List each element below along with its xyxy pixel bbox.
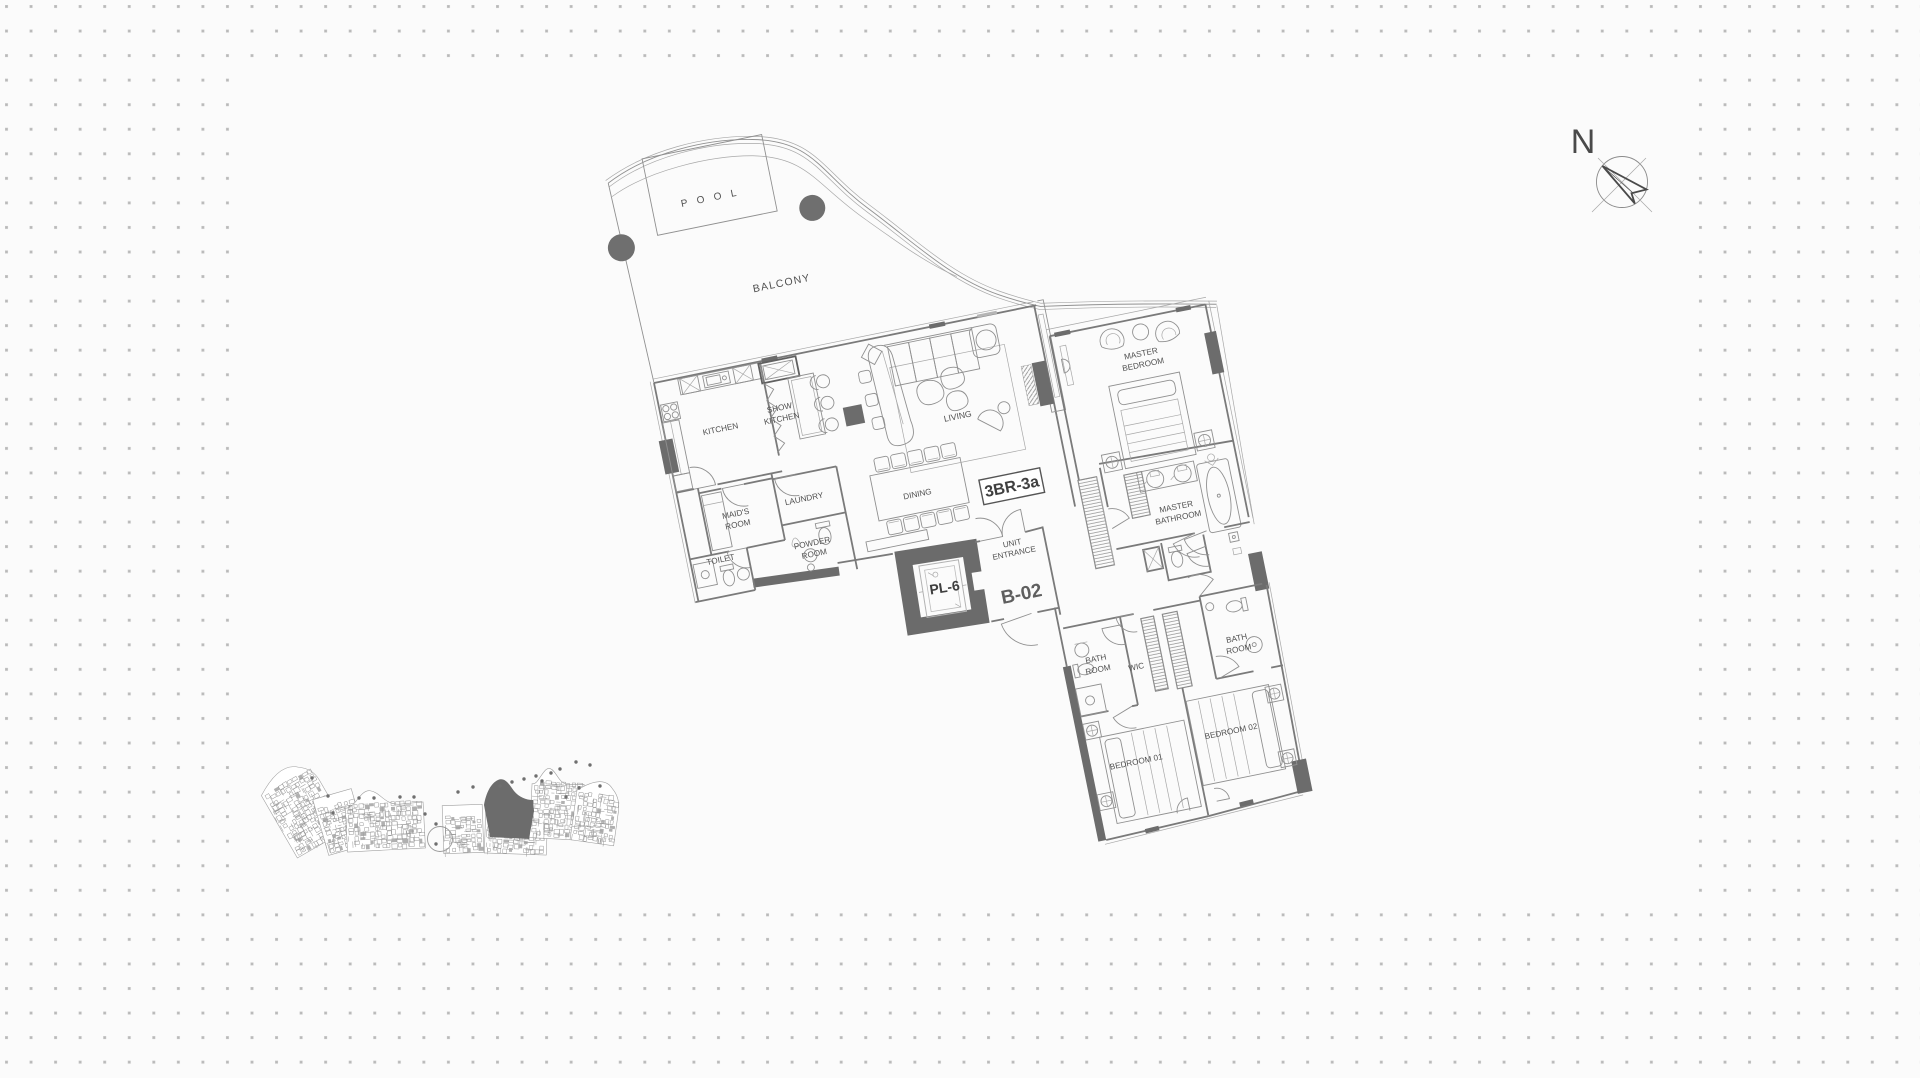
svg-text:N: N: [1571, 123, 1596, 161]
